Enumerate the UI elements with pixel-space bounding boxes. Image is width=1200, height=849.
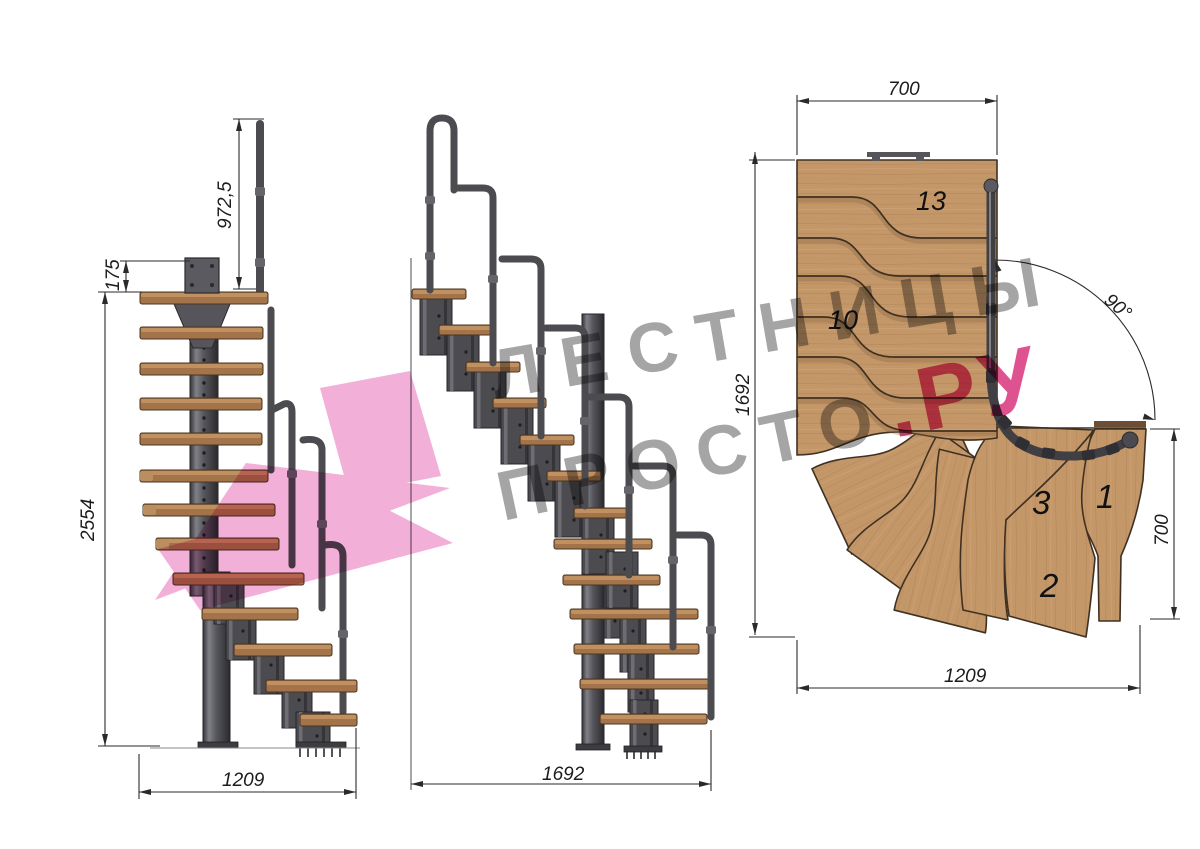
- svg-text:1209: 1209: [222, 770, 265, 791]
- svg-text:972,5: 972,5: [215, 181, 236, 229]
- svg-text:1692: 1692: [542, 764, 585, 785]
- svg-text:700: 700: [1152, 514, 1173, 546]
- svg-text:1: 1: [1096, 478, 1114, 515]
- svg-text:2554: 2554: [78, 499, 99, 542]
- svg-text:1209: 1209: [944, 666, 987, 687]
- svg-text:13: 13: [916, 186, 946, 216]
- svg-text:175: 175: [103, 259, 124, 291]
- svg-text:700: 700: [888, 79, 920, 100]
- svg-text:2: 2: [1039, 567, 1058, 604]
- svg-text:3: 3: [1032, 484, 1051, 521]
